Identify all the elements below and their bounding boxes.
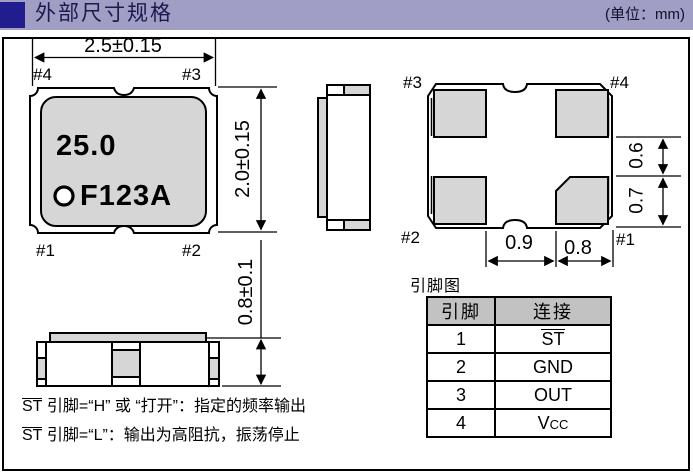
top-view-pin3-label: #3 — [182, 66, 201, 83]
pad-pin3 — [434, 90, 486, 137]
side-view-vertical-drawing — [318, 85, 370, 230]
pin-number-cell: 4 — [427, 409, 495, 437]
dim-right-upper-label: 0.6 — [628, 136, 647, 176]
pad-pin1-chamfered — [556, 177, 608, 224]
datasheet-page: 外部尺寸规格 (单位：mm) — [0, 0, 693, 473]
bottom-view-pin3-label: #3 — [403, 74, 422, 91]
lid-profile — [318, 98, 327, 217]
dim-thickness-label: 0.8±0.1 — [236, 247, 256, 337]
dim-width-label: 2.5±0.15 — [63, 36, 183, 56]
pin-connection-cell: ST — [495, 325, 611, 353]
pin-connection-cell: OUT — [495, 381, 611, 409]
pin-number-cell: 2 — [427, 353, 495, 381]
pin-connection-cell: VCC — [495, 409, 611, 437]
pin-number-cell: 3 — [427, 381, 495, 409]
pin-connection-cell: GND — [495, 353, 611, 381]
pad-pin4 — [556, 90, 608, 137]
pad-pin2 — [434, 177, 486, 224]
dim-pad-gap-label: 0.9 — [494, 233, 544, 253]
pin-table: 引脚 连接 1ST2GND3OUT4VCC — [426, 296, 612, 438]
bottom-view-pin1-label: #1 — [616, 231, 635, 248]
pin-number-cell: 1 — [427, 325, 495, 353]
bottom-view-pin2-label: #2 — [401, 229, 420, 246]
pin-table-row: 3OUT — [427, 381, 611, 409]
connection-column-header: 连接 — [495, 297, 611, 325]
pin-table-body: 1ST2GND3OUT4VCC — [427, 325, 611, 437]
marking-code: F123A — [80, 182, 172, 211]
pin-table-row: 2GND — [427, 353, 611, 381]
pin1-marker-circle — [55, 187, 73, 205]
dim-height-label: 2.0±0.15 — [233, 109, 253, 209]
pin-table-title: 引脚图 — [410, 279, 461, 295]
lid-strip — [50, 333, 206, 342]
pin-table-row: 4VCC — [427, 409, 611, 437]
top-view-pin1-label: #1 — [36, 242, 55, 259]
crystal-element — [112, 350, 140, 377]
dim-right-lower-label: 0.7 — [628, 181, 647, 221]
top-view-pin2-label: #2 — [182, 242, 201, 259]
dim-pad-width-label: 0.8 — [553, 238, 603, 258]
pin-table-row: 1ST — [427, 325, 611, 353]
side-view-horizontal-drawing — [37, 333, 219, 386]
body-profile — [327, 85, 370, 230]
pin-table-header-row: 引脚 连接 — [427, 297, 611, 325]
bottom-view-pin4-label: #4 — [610, 74, 629, 91]
pin-column-header: 引脚 — [427, 297, 495, 325]
top-view-pin4-label: #4 — [33, 66, 52, 83]
marking-frequency: 25.0 — [56, 132, 116, 161]
st-note-line: ST 引脚=“H” 或 “打开”：指定的频率输出 — [22, 396, 306, 425]
st-note-line: ST 引脚=“L”：输出为高阻抗，振荡停止 — [22, 425, 306, 454]
st-notes: ST 引脚=“H” 或 “打开”：指定的频率输出ST 引脚=“L”：输出为高阻抗… — [22, 396, 306, 454]
